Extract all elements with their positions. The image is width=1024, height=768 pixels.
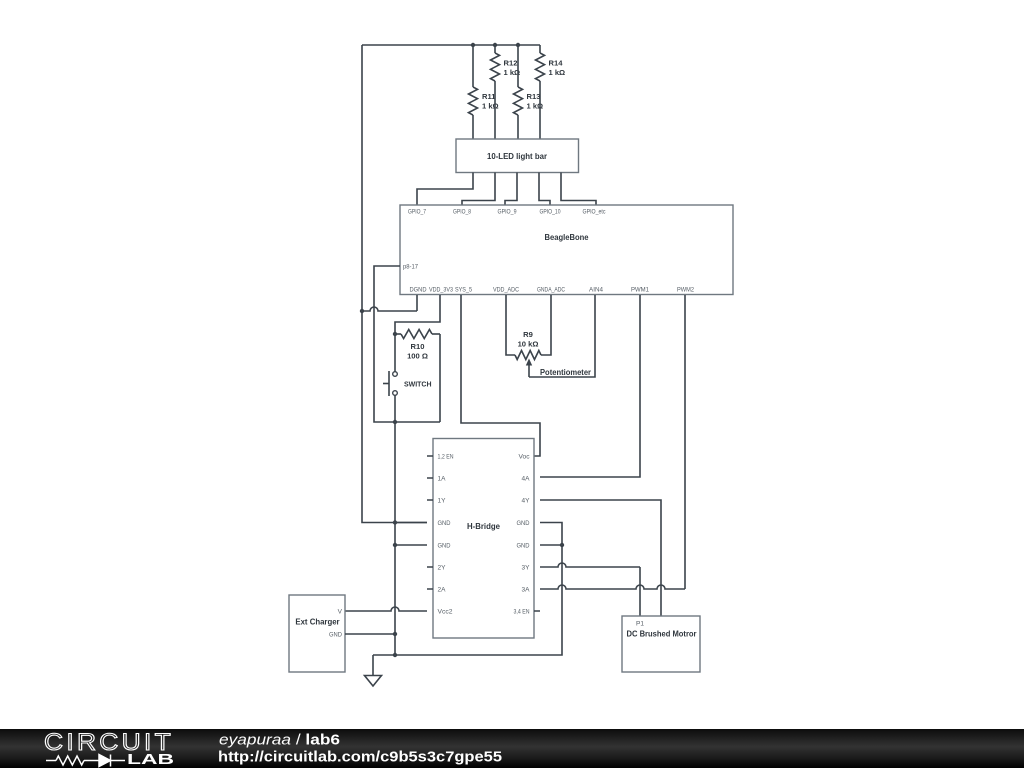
svg-text:Voc: Voc [519,453,531,460]
svg-text:GND: GND [438,542,451,549]
svg-text:GNDA_ADC: GNDA_ADC [537,287,565,294]
svg-text:BeagleBone: BeagleBone [545,232,589,242]
svg-text:2A: 2A [438,586,447,593]
svg-text:1 kΩ: 1 kΩ [482,102,499,111]
svg-text:10 kΩ: 10 kΩ [518,340,539,349]
svg-text:PWM1: PWM1 [631,287,649,294]
svg-text:GND: GND [517,520,530,527]
svg-text:100 Ω: 100 Ω [407,352,428,361]
svg-text:p8-17: p8-17 [403,264,418,271]
svg-text:R10: R10 [411,342,425,351]
svg-text:Vcc2: Vcc2 [438,608,453,615]
svg-text:R11: R11 [482,92,496,101]
svg-text:GND: GND [329,632,342,639]
svg-text:10-LED light bar: 10-LED light bar [487,152,548,161]
svg-text:H-Bridge: H-Bridge [467,521,500,531]
svg-text:1,2 EN: 1,2 EN [438,453,454,460]
svg-text:SYS_5: SYS_5 [455,287,472,294]
svg-text:GPIO_etc: GPIO_etc [583,209,607,216]
svg-text:GND: GND [438,520,451,527]
svg-text:GND: GND [517,542,530,549]
svg-text:GPIO_8: GPIO_8 [453,209,471,216]
svg-text:R9: R9 [523,330,533,339]
svg-text:AIN4: AIN4 [589,287,603,294]
svg-text:P1: P1 [636,621,644,628]
svg-text:VDD_ADC: VDD_ADC [493,287,519,294]
svg-text:Potentiometer: Potentiometer [540,368,591,377]
svg-text:1 kΩ: 1 kΩ [549,68,566,77]
svg-text:R13: R13 [527,92,541,101]
svg-text:3,4 EN: 3,4 EN [514,608,530,615]
svg-text:4Y: 4Y [522,497,531,504]
svg-text:R12: R12 [504,59,518,68]
svg-text:1A: 1A [438,475,447,482]
svg-text:3Y: 3Y [522,564,531,571]
svg-text:R14: R14 [549,59,564,68]
svg-text:PWM2: PWM2 [677,287,694,294]
svg-text:DC Brushed Motror: DC Brushed Motror [627,630,697,639]
svg-text:GPIO_7: GPIO_7 [408,209,426,216]
svg-text:GPIO_9: GPIO_9 [498,209,517,216]
svg-text:SWITCH: SWITCH [404,382,432,389]
svg-text:DGND: DGND [410,287,427,294]
svg-text:V: V [338,608,343,615]
svg-text:2Y: 2Y [438,564,447,571]
svg-text:4A: 4A [522,475,531,482]
svg-text:Ext Charger: Ext Charger [295,618,339,627]
svg-text:1Y: 1Y [438,497,447,504]
svg-text:http://circuitlab.com/c9b5s3c7: http://circuitlab.com/c9b5s3c7gpe55 [218,750,502,766]
svg-text:GPIO_10: GPIO_10 [540,209,561,216]
svg-text:VDD_3V3: VDD_3V3 [429,287,453,294]
svg-text:3A: 3A [522,586,531,593]
svg-text:LAB: LAB [127,752,174,768]
svg-text:eyapuraa / lab6: eyapuraa / lab6 [219,732,340,749]
